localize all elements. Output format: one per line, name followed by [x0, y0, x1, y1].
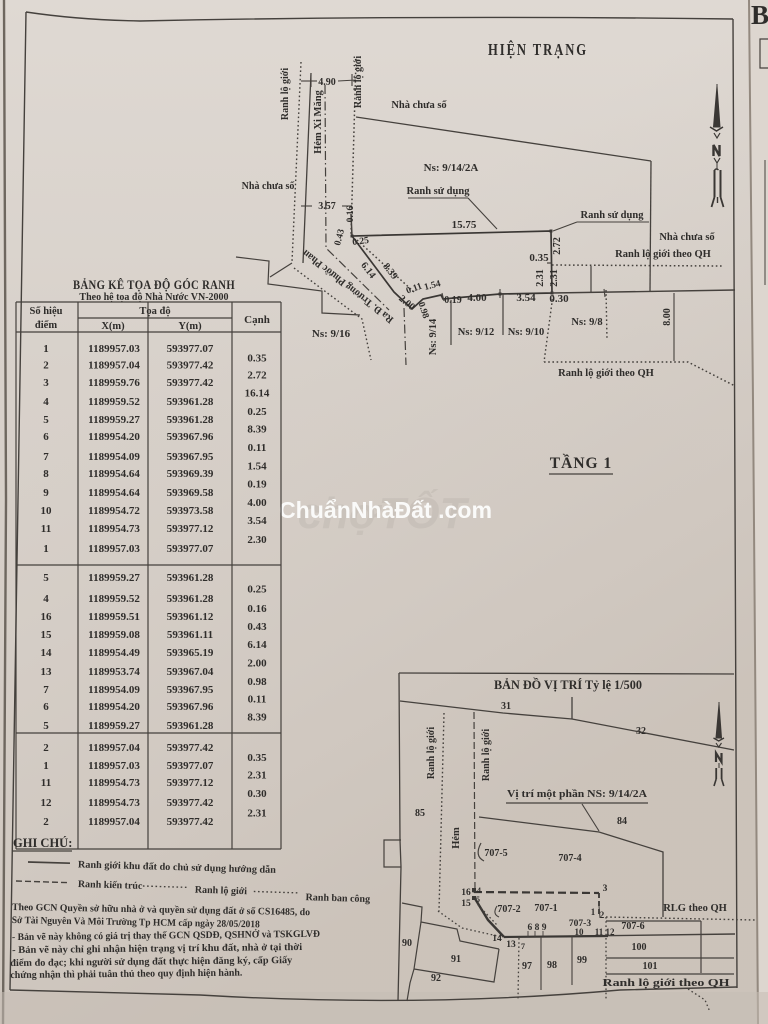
svg-text:593969.39: 593969.39: [167, 468, 214, 480]
svg-text:1: 1: [43, 543, 49, 555]
svg-text:10: 10: [575, 927, 585, 937]
svg-text:1189959.08: 1189959.08: [88, 629, 140, 641]
svg-text:101: 101: [643, 961, 658, 972]
svg-text:4.90: 4.90: [318, 77, 336, 88]
svg-text:6.14: 6.14: [247, 639, 267, 651]
svg-text:Ns: 9/16: Ns: 9/16: [312, 328, 351, 340]
svg-text:593977.42: 593977.42: [167, 797, 214, 809]
svg-text:593961.28: 593961.28: [167, 396, 214, 408]
svg-text:2.72: 2.72: [247, 369, 267, 381]
svg-text:593967.96: 593967.96: [167, 431, 214, 443]
svg-text:7: 7: [43, 451, 49, 463]
svg-text:Ns: 9/12: Ns: 9/12: [458, 327, 494, 338]
svg-text:Nhà chưa số: Nhà chưa số: [242, 181, 296, 192]
svg-text:707-5: 707-5: [484, 848, 507, 859]
svg-text:Ranh lộ giới theo QH: Ranh lộ giới theo QH: [615, 249, 711, 260]
svg-text:32: 32: [636, 726, 646, 737]
svg-text:1189954.73: 1189954.73: [88, 523, 140, 535]
svg-text:Ns: 9/14: Ns: 9/14: [428, 318, 439, 355]
svg-text:5: 5: [43, 720, 49, 732]
svg-text:707-2: 707-2: [497, 904, 520, 915]
svg-text:Ranh ban công: Ranh ban công: [305, 892, 370, 905]
svg-text:8.00: 8.00: [662, 308, 673, 326]
svg-text:0.11: 0.11: [248, 694, 267, 706]
svg-text:707-1: 707-1: [534, 903, 557, 914]
svg-text:3: 3: [43, 377, 49, 389]
svg-text:1189954.72: 1189954.72: [88, 505, 140, 517]
svg-text:1189957.04: 1189957.04: [88, 816, 140, 828]
svg-text:1189954.09: 1189954.09: [88, 451, 140, 463]
svg-text:5: 5: [43, 572, 49, 584]
svg-text:593961.12: 593961.12: [167, 611, 214, 623]
svg-text:Nhà chưa số: Nhà chưa số: [391, 100, 447, 111]
svg-text:1189954.09: 1189954.09: [88, 684, 140, 696]
svg-text:16.14: 16.14: [245, 388, 270, 400]
svg-text:707-6: 707-6: [621, 921, 644, 932]
svg-text:B: B: [751, 0, 768, 30]
svg-text:11: 11: [41, 777, 51, 789]
svg-text:điểm: điểm: [35, 320, 57, 331]
svg-text:Ranh lộ giới: Ranh lộ giới: [280, 68, 291, 120]
svg-text:12: 12: [606, 927, 616, 937]
svg-text:593977.42: 593977.42: [167, 742, 214, 754]
svg-text:0.11: 0.11: [248, 442, 267, 454]
svg-text:99: 99: [577, 955, 587, 966]
svg-text:1189959.76: 1189959.76: [88, 377, 140, 389]
svg-text:3.54: 3.54: [516, 292, 536, 304]
svg-text:1189959.27: 1189959.27: [88, 720, 140, 732]
svg-text:593961.28: 593961.28: [167, 414, 214, 426]
svg-text:Số hiệu: Số hiệu: [30, 306, 63, 317]
svg-text:31: 31: [501, 701, 511, 712]
svg-text:0.19: 0.19: [444, 295, 462, 306]
svg-text:4.00: 4.00: [247, 497, 267, 509]
svg-text:100: 100: [632, 942, 647, 953]
svg-text:HIỆN TRẠNG: HIỆN TRẠNG: [488, 40, 588, 59]
svg-text:1189957.03: 1189957.03: [88, 760, 140, 772]
svg-text:Ranh lộ giới: Ranh lộ giới: [353, 56, 364, 108]
svg-text:1: 1: [43, 343, 49, 355]
svg-text:Ns: 9/8: Ns: 9/8: [571, 317, 602, 328]
svg-text:Y(m): Y(m): [178, 321, 202, 332]
svg-text:Ranh lộ giới theo QH: Ranh lộ giới theo QH: [603, 978, 730, 989]
svg-text:98: 98: [547, 960, 557, 971]
svg-text:707-4: 707-4: [558, 853, 581, 864]
svg-text:8.39: 8.39: [247, 712, 267, 724]
svg-text:6: 6: [43, 431, 49, 443]
svg-text:593977.07: 593977.07: [167, 543, 214, 555]
svg-text:2.31: 2.31: [535, 269, 546, 287]
svg-text:8: 8: [43, 468, 49, 480]
svg-text:Ns: 9/14/2A: Ns: 9/14/2A: [424, 162, 479, 174]
svg-text:Ns: 9/10: Ns: 9/10: [508, 327, 544, 338]
svg-text:4: 4: [43, 396, 49, 408]
svg-text:Vị trí một phần NS: 9/14/2A: Vị trí một phần NS: 9/14/2A: [507, 788, 647, 800]
svg-text:0.98: 0.98: [247, 676, 267, 688]
svg-text:0.30: 0.30: [247, 788, 267, 800]
svg-text:1189959.27: 1189959.27: [88, 572, 140, 584]
svg-text:16: 16: [41, 611, 53, 623]
svg-text:593967.96: 593967.96: [167, 701, 214, 713]
svg-text:593977.12: 593977.12: [167, 523, 214, 535]
svg-text:593961.11: 593961.11: [167, 629, 213, 641]
svg-text:593967.95: 593967.95: [167, 684, 214, 696]
svg-text:4: 4: [43, 593, 49, 605]
svg-text:1189959.52: 1189959.52: [88, 396, 140, 408]
svg-text:5: 5: [43, 414, 49, 426]
svg-text:593977.42: 593977.42: [167, 816, 214, 828]
svg-text:Ranh kiến trúc: Ranh kiến trúc: [78, 879, 143, 892]
svg-text:14: 14: [41, 647, 53, 659]
svg-text:1189959.51: 1189959.51: [88, 611, 140, 623]
svg-text:11: 11: [41, 523, 51, 535]
svg-text:1189959.27: 1189959.27: [88, 414, 140, 426]
svg-text:1189957.03: 1189957.03: [88, 343, 140, 355]
svg-text:593961.28: 593961.28: [167, 720, 214, 732]
svg-text:2.00: 2.00: [247, 658, 267, 670]
svg-text:593961.28: 593961.28: [167, 593, 214, 605]
svg-text:2.31: 2.31: [549, 269, 560, 287]
svg-text:91: 91: [451, 954, 461, 965]
svg-text:7: 7: [43, 684, 49, 696]
svg-text:Cạnh: Cạnh: [244, 314, 270, 326]
svg-text:10: 10: [41, 505, 53, 517]
svg-text:BẢNG KÊ TỌA ĐỘ GÓC RANH: BẢNG KÊ TỌA ĐỘ GÓC RANH: [73, 278, 235, 292]
svg-text:90: 90: [402, 938, 412, 949]
svg-text:Tọa độ: Tọa độ: [139, 306, 170, 317]
svg-text:Hẻm Xi Măng: Hẻm Xi Măng: [313, 89, 324, 153]
svg-text:85: 85: [415, 808, 425, 819]
svg-text:1189957.04: 1189957.04: [88, 360, 140, 372]
svg-text:593977.07: 593977.07: [167, 343, 214, 355]
svg-text:0.35: 0.35: [529, 252, 549, 264]
svg-text:0.35: 0.35: [247, 352, 267, 364]
svg-text:1189954.49: 1189954.49: [88, 647, 140, 659]
svg-text:0.30: 0.30: [549, 293, 569, 305]
svg-text:593961.28: 593961.28: [167, 572, 214, 584]
svg-text:2.31: 2.31: [247, 808, 266, 820]
svg-text:0.25: 0.25: [247, 406, 267, 418]
svg-text:593977.42: 593977.42: [167, 377, 214, 389]
svg-text:6 8 9: 6 8 9: [528, 923, 547, 933]
svg-text:2: 2: [43, 816, 49, 828]
svg-text:1189954.73: 1189954.73: [88, 777, 140, 789]
svg-text:0.16: 0.16: [346, 205, 356, 222]
svg-text:11: 11: [595, 927, 604, 937]
svg-text:TẦNG 1: TẦNG 1: [550, 454, 612, 472]
svg-text:1189954.20: 1189954.20: [88, 701, 140, 713]
svg-text:4: 4: [477, 886, 481, 895]
svg-text:Ranh sử dụng: Ranh sử dụng: [581, 210, 645, 221]
svg-text:Nhà chưa số: Nhà chưa số: [659, 232, 715, 243]
svg-text:1189954.20: 1189954.20: [88, 431, 140, 443]
svg-text:9: 9: [43, 487, 49, 499]
svg-text:1189954.73: 1189954.73: [88, 797, 140, 809]
svg-text:3.57: 3.57: [318, 201, 336, 212]
svg-text:0.43: 0.43: [247, 621, 267, 633]
svg-text:1.54: 1.54: [247, 461, 267, 473]
svg-text:Hẻm: Hẻm: [451, 827, 462, 849]
svg-text:593967.95: 593967.95: [167, 451, 214, 463]
svg-text:1189954.64: 1189954.64: [88, 468, 140, 480]
svg-text:Ranh lộ giới: Ranh lộ giới: [481, 729, 492, 781]
svg-text:593977.12: 593977.12: [167, 777, 214, 789]
svg-text:2.31: 2.31: [247, 770, 266, 782]
svg-text:1189953.74: 1189953.74: [88, 666, 140, 678]
svg-text:12: 12: [41, 797, 53, 809]
svg-text:2.72: 2.72: [552, 237, 563, 255]
svg-text:593973.58: 593973.58: [167, 505, 214, 517]
svg-text:X(m): X(m): [101, 321, 125, 332]
svg-text:3: 3: [603, 884, 608, 894]
svg-text:2: 2: [43, 742, 49, 754]
svg-text:84: 84: [617, 816, 627, 827]
svg-text:1189957.04: 1189957.04: [88, 742, 140, 754]
svg-text:5: 5: [476, 895, 480, 904]
svg-text:2: 2: [43, 360, 49, 372]
svg-text:0.25: 0.25: [247, 584, 267, 596]
svg-text:15: 15: [41, 629, 53, 641]
svg-text:593965.19: 593965.19: [167, 647, 214, 659]
svg-text:92: 92: [431, 973, 441, 984]
svg-text:1189954.64: 1189954.64: [88, 487, 140, 499]
svg-text:GHI CHÚ:: GHI CHÚ:: [13, 836, 72, 850]
svg-text:RLG theo QH: RLG theo QH: [663, 903, 727, 914]
svg-text:15: 15: [461, 899, 471, 909]
svg-text:Theo hệ tọa độ Nhà Nước VN-200: Theo hệ tọa độ Nhà Nước VN-2000: [79, 292, 228, 303]
svg-text:593977.07: 593977.07: [167, 760, 214, 772]
svg-text:3.54: 3.54: [247, 515, 267, 527]
svg-text:1189959.52: 1189959.52: [88, 593, 140, 605]
svg-text:593977.42: 593977.42: [167, 360, 214, 372]
svg-text:14: 14: [492, 934, 502, 944]
svg-text:Ranh lộ giới: Ranh lộ giới: [195, 885, 248, 898]
svg-text:593967.04: 593967.04: [167, 666, 214, 678]
svg-text:ChuẩnNhàĐất .com: ChuẩnNhàĐất .com: [279, 497, 492, 523]
svg-text:2: 2: [600, 910, 605, 920]
svg-text:Ranh lộ giới theo QH: Ranh lộ giới theo QH: [558, 368, 654, 379]
svg-text:1: 1: [43, 760, 49, 772]
svg-text:0.16: 0.16: [247, 603, 267, 615]
svg-text:8.39: 8.39: [247, 424, 267, 436]
svg-text:13: 13: [41, 666, 53, 678]
svg-text:6: 6: [43, 701, 49, 713]
svg-text:13: 13: [506, 940, 516, 950]
svg-text:2.30: 2.30: [247, 534, 267, 546]
svg-text:BẢN ĐỒ VỊ TRÍ Tỷ lệ 1/500: BẢN ĐỒ VỊ TRÍ Tỷ lệ 1/500: [494, 677, 642, 692]
svg-text:97: 97: [522, 961, 532, 972]
svg-text:0.19: 0.19: [247, 479, 267, 491]
svg-text:4.00: 4.00: [467, 292, 487, 304]
svg-text:1: 1: [591, 907, 596, 917]
svg-text:15.75: 15.75: [452, 219, 477, 231]
svg-text:593969.58: 593969.58: [167, 487, 214, 499]
svg-text:16: 16: [461, 888, 471, 898]
svg-text:1189957.03: 1189957.03: [88, 543, 140, 555]
svg-text:7: 7: [521, 942, 525, 951]
svg-text:Ranh sử dụng: Ranh sử dụng: [407, 186, 471, 197]
svg-text:0.35: 0.35: [247, 752, 267, 764]
svg-text:Ranh lộ giới: Ranh lộ giới: [426, 727, 437, 779]
